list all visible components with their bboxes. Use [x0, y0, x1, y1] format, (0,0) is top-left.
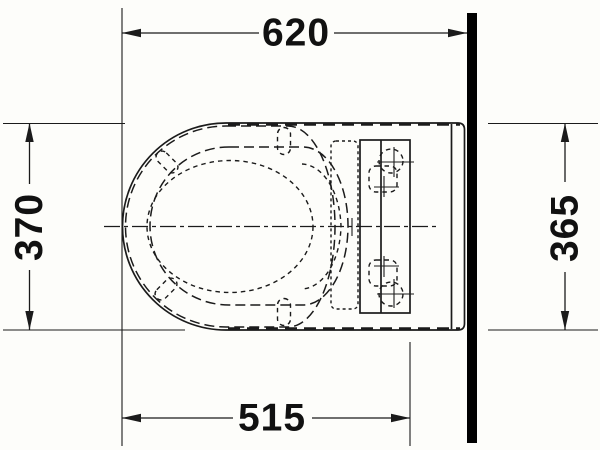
bolt-slot-bottom [369, 260, 397, 286]
dimension-right-depth: 365 [544, 123, 587, 330]
arrowhead-370-top [25, 123, 33, 142]
arrowhead-370-bottom [25, 311, 33, 330]
wall-line [467, 13, 477, 443]
arrowhead-620-left [122, 29, 141, 37]
dimension-top-width: 620 [122, 12, 467, 55]
dim-value-620: 620 [262, 12, 330, 55]
arrowhead-365-top [561, 123, 569, 142]
dim-value-365: 365 [544, 194, 587, 262]
seat-bumper-upper-right [278, 128, 291, 155]
toilet-plan-drawing: 620 370 365 515 [0, 0, 600, 450]
mounting-hole-top [369, 147, 414, 197]
arrowhead-365-bottom [561, 311, 569, 330]
dimension-left-depth: 370 [8, 123, 51, 330]
dim-value-370: 370 [8, 193, 51, 261]
dimension-bottom-width: 515 [122, 397, 410, 440]
seat-bumper-lower-right [278, 299, 291, 326]
mounting-hole-bottom [369, 256, 414, 308]
dim-value-515: 515 [238, 397, 306, 440]
arrowhead-620-right [448, 29, 467, 37]
technical-drawing-canvas: 620 370 365 515 [0, 0, 600, 450]
arrowhead-515-left [122, 414, 141, 422]
hidden-frame-outline [331, 141, 358, 309]
arrowhead-515-right [391, 414, 410, 422]
bolt-hole-circle-top [379, 149, 403, 173]
